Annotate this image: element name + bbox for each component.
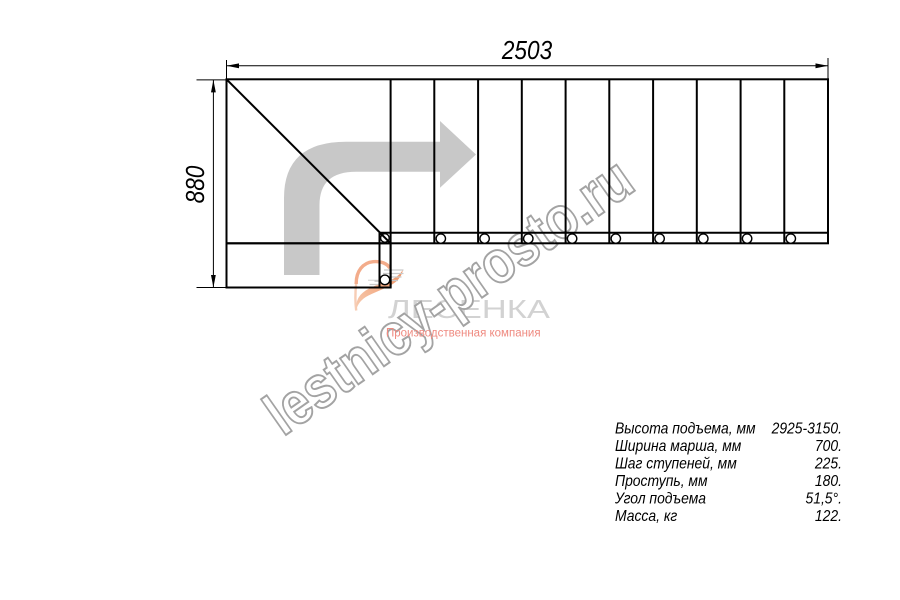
svg-text:180.: 180. — [815, 472, 842, 490]
svg-text:2503: 2503 — [501, 37, 553, 66]
svg-text:2925-3150.: 2925-3150. — [771, 420, 842, 438]
svg-text:Шаг ступеней, мм: Шаг ступеней, мм — [615, 455, 737, 473]
svg-text:Угол подъема: Угол подъема — [614, 490, 706, 508]
svg-text:Ширина марша, мм: Ширина марша, мм — [615, 437, 741, 455]
svg-text:225.: 225. — [814, 455, 842, 473]
svg-text:Производственная компания: Производственная компания — [386, 328, 541, 340]
svg-text:Масса, кг: Масса, кг — [615, 507, 678, 525]
svg-text:880: 880 — [182, 165, 211, 203]
svg-text:700.: 700. — [815, 437, 842, 455]
svg-text:Высота подъема, мм: Высота подъема, мм — [615, 420, 756, 438]
svg-text:122.: 122. — [815, 507, 842, 525]
svg-text:51,5°.: 51,5°. — [805, 490, 842, 508]
svg-text:Проступь, мм: Проступь, мм — [615, 472, 708, 490]
